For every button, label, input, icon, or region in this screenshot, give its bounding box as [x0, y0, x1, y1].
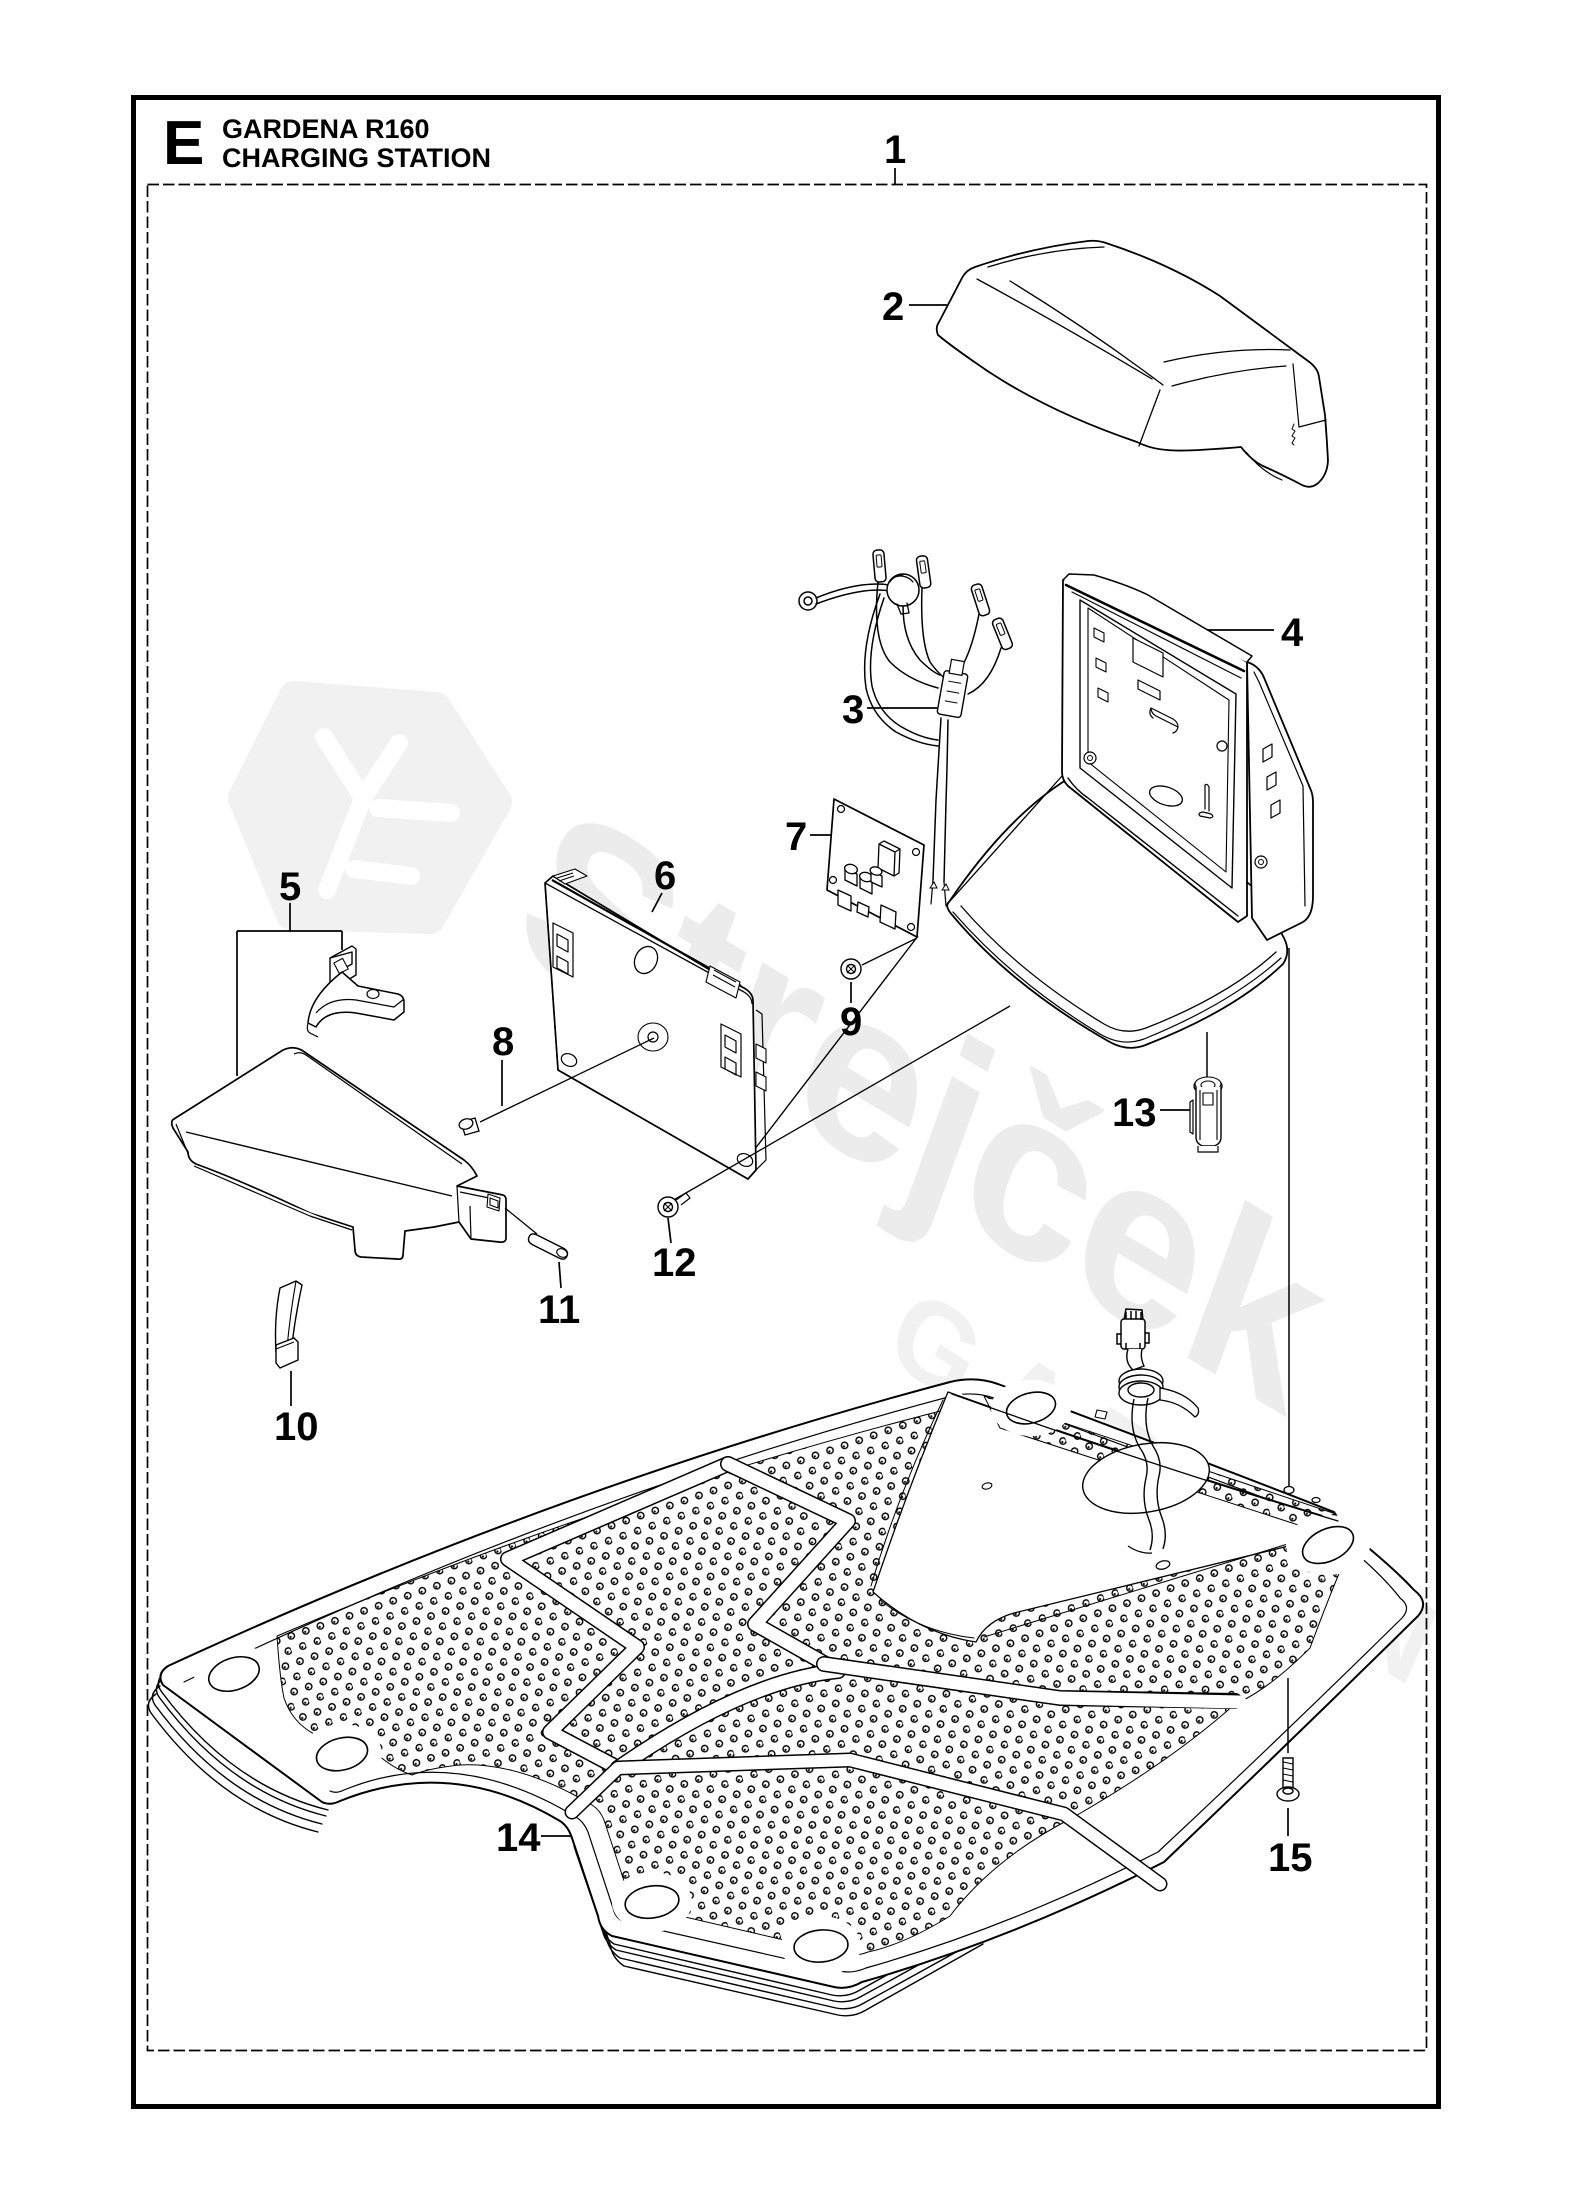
- svg-text:13: 13: [1112, 1091, 1157, 1135]
- svg-text:9: 9: [840, 1000, 862, 1044]
- svg-text:2: 2: [882, 285, 904, 329]
- svg-text:6: 6: [654, 854, 676, 898]
- svg-text:5: 5: [279, 865, 301, 909]
- svg-text:1: 1: [884, 128, 906, 172]
- svg-text:CHARGING STATION: CHARGING STATION: [222, 143, 491, 173]
- svg-text:E: E: [163, 109, 204, 178]
- svg-text:10: 10: [274, 1405, 319, 1449]
- svg-text:8: 8: [492, 1020, 514, 1064]
- svg-text:14: 14: [496, 1816, 541, 1860]
- svg-text:7: 7: [785, 815, 807, 859]
- svg-text:15: 15: [1268, 1836, 1313, 1880]
- svg-text:3: 3: [842, 688, 864, 732]
- svg-text:4: 4: [1281, 611, 1304, 655]
- svg-text:12: 12: [652, 1241, 697, 1285]
- svg-text:GARDENA R160: GARDENA R160: [222, 114, 430, 144]
- svg-text:11: 11: [538, 1288, 580, 1332]
